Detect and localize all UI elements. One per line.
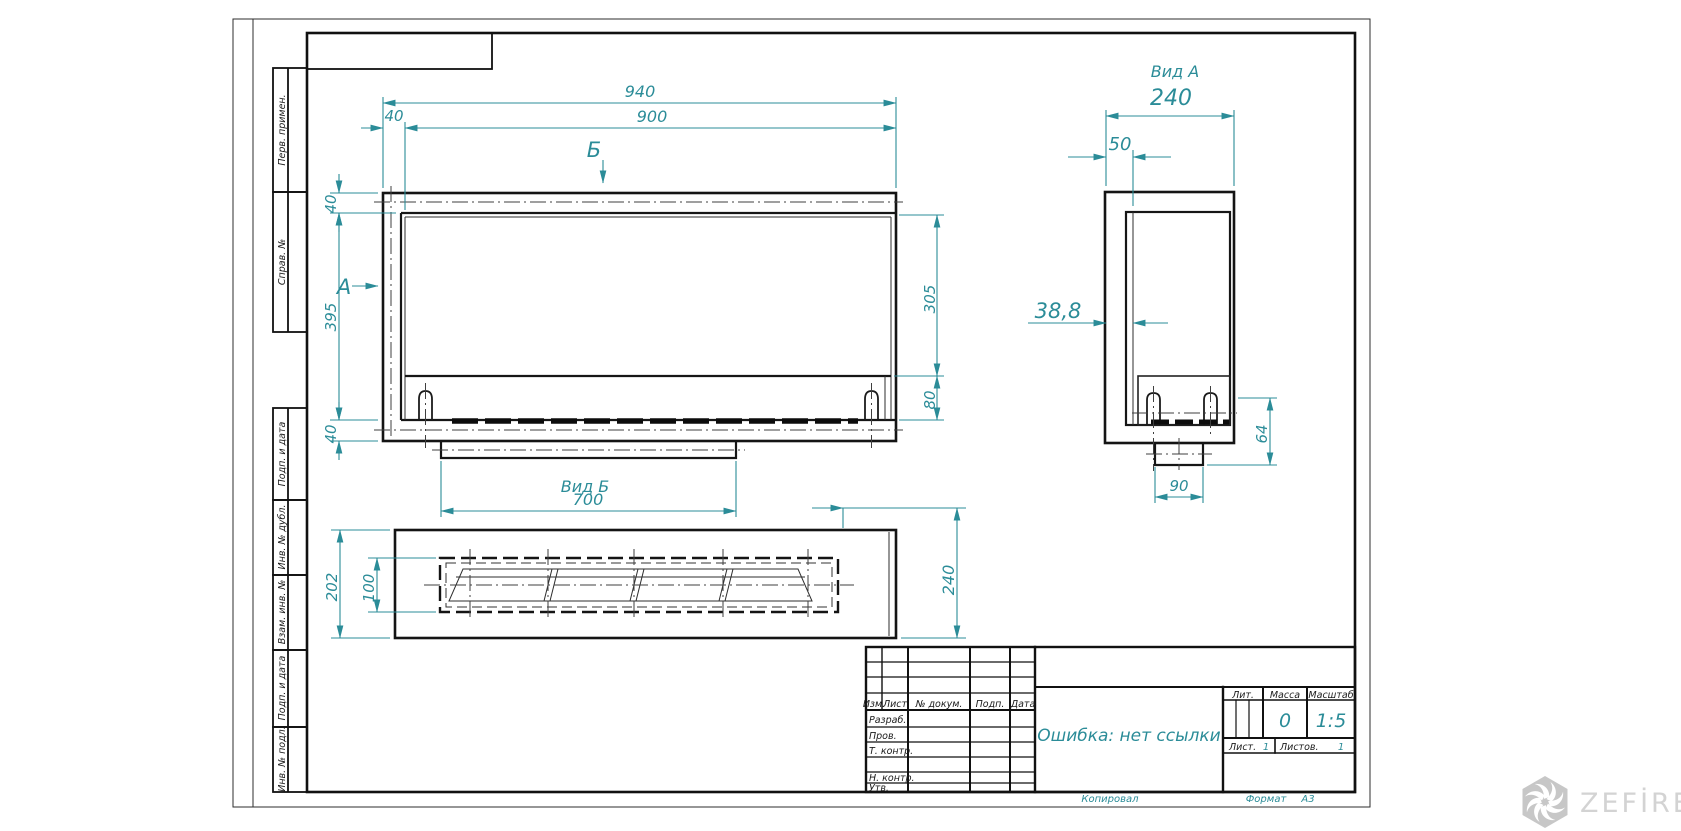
- value-massa: 0: [1279, 710, 1291, 732]
- dim-front-bottom-flange: 40: [322, 424, 340, 443]
- side-strip-box: Справ. №: [273, 192, 307, 332]
- label-list: Лист.: [1228, 742, 1256, 753]
- view-b: Вид Б: [395, 477, 896, 638]
- hexagon-flame-icon: [1523, 776, 1568, 828]
- dim-view-a-duct-height: 64: [1253, 424, 1271, 443]
- watermark: ZEFİRE: [1523, 776, 1681, 828]
- dim-front-body-height: 395: [322, 303, 340, 332]
- dim-view-a-wall: 38,8: [1035, 299, 1082, 323]
- document-name: Ошибка: нет ссылки: [1037, 726, 1220, 746]
- view-b-title: Вид Б: [561, 477, 610, 496]
- side-strip-box: Перв. примен.: [273, 68, 307, 192]
- col-data: Дата: [1010, 699, 1036, 710]
- label-lit: Лит.: [1231, 690, 1254, 701]
- side-strip: Перв. примен. Справ. № Подп. и дата Инв.…: [273, 68, 307, 792]
- row-utv: Утв.: [869, 783, 889, 794]
- dim-front-inner-width: 900: [637, 107, 668, 126]
- row-tkontr: Т. контр.: [869, 746, 913, 757]
- col-ndokum: № докум.: [915, 699, 963, 710]
- dim-front-flange-offset: 40: [384, 107, 403, 125]
- row-prov: Пров.: [869, 731, 897, 742]
- top-left-stamp-box: [307, 33, 492, 69]
- dim-view-b-depth: 202: [323, 573, 341, 602]
- side-strip-box: Взам. инв. №: [273, 575, 307, 650]
- front-view: [374, 186, 903, 458]
- dim-view-a-duct-width: 90: [1169, 477, 1188, 495]
- drawing-sheet: Перв. примен. Справ. № Подп. и дата Инв.…: [0, 0, 1681, 831]
- value-scale: 1:5: [1316, 710, 1347, 732]
- side-strip-box: Подп. и дата: [273, 408, 307, 500]
- label-listov: Листов.: [1279, 742, 1319, 753]
- dim-front-window-height: 305: [921, 285, 939, 314]
- dim-front-total-width: 940: [625, 82, 656, 101]
- col-izm: Изм.: [863, 699, 885, 710]
- title-block: Изм. Лист № докум. Подп. Дата Разраб. Пр…: [863, 647, 1355, 805]
- label-massa: Масса: [1270, 690, 1300, 701]
- side-strip-label: Справ. №: [277, 239, 288, 285]
- value-list: 1: [1263, 742, 1269, 753]
- dim-front-top-flange: 40: [322, 194, 340, 213]
- section-label-a: А: [335, 275, 351, 299]
- dim-view-b-height: 240: [939, 565, 958, 596]
- brand-text: ZEFİRE: [1580, 787, 1681, 819]
- side-strip-label: Взам. инв. №: [277, 580, 288, 645]
- side-strip-label: Инв. № дубл.: [277, 505, 288, 570]
- dim-view-a-offset: 50: [1109, 134, 1132, 155]
- col-list: Лист: [882, 699, 908, 710]
- dim-front-lower-height: 80: [921, 390, 939, 409]
- footer-format-value: А3: [1300, 794, 1314, 805]
- dim-view-a-depth: 240: [1150, 86, 1192, 111]
- side-strip-box: Инв. № подл.: [273, 726, 307, 792]
- side-strip-box: Инв. № дубл.: [273, 500, 307, 575]
- footer-format-label: Формат: [1246, 794, 1288, 805]
- col-podp: Подп.: [976, 699, 1005, 710]
- side-strip-label: Подп. и дата: [277, 655, 288, 720]
- front-view-dimensions: 940 900 40 Б А 40 395 40 305 80: [322, 82, 944, 517]
- side-strip-box: Подп. и дата: [273, 650, 307, 727]
- dim-view-b-slot: 100: [360, 574, 378, 603]
- view-b-dimensions: 202 100 240: [323, 508, 966, 638]
- view-a-dimensions: 240 50 38,8 90 64: [1028, 86, 1277, 503]
- value-listov: 1: [1338, 742, 1344, 753]
- label-masshtab: Масштаб: [1308, 690, 1353, 701]
- view-a-title: Вид А: [1151, 62, 1199, 81]
- row-razrab: Разраб.: [869, 715, 906, 726]
- side-strip-label: Инв. № подл.: [277, 726, 288, 792]
- side-strip-label: Подп. и дата: [277, 421, 288, 486]
- section-label-b: Б: [587, 138, 601, 162]
- view-a: Вид А: [1105, 62, 1237, 471]
- side-strip-label: Перв. примен.: [277, 94, 288, 165]
- footer-kopiroval: Копировал: [1081, 794, 1139, 805]
